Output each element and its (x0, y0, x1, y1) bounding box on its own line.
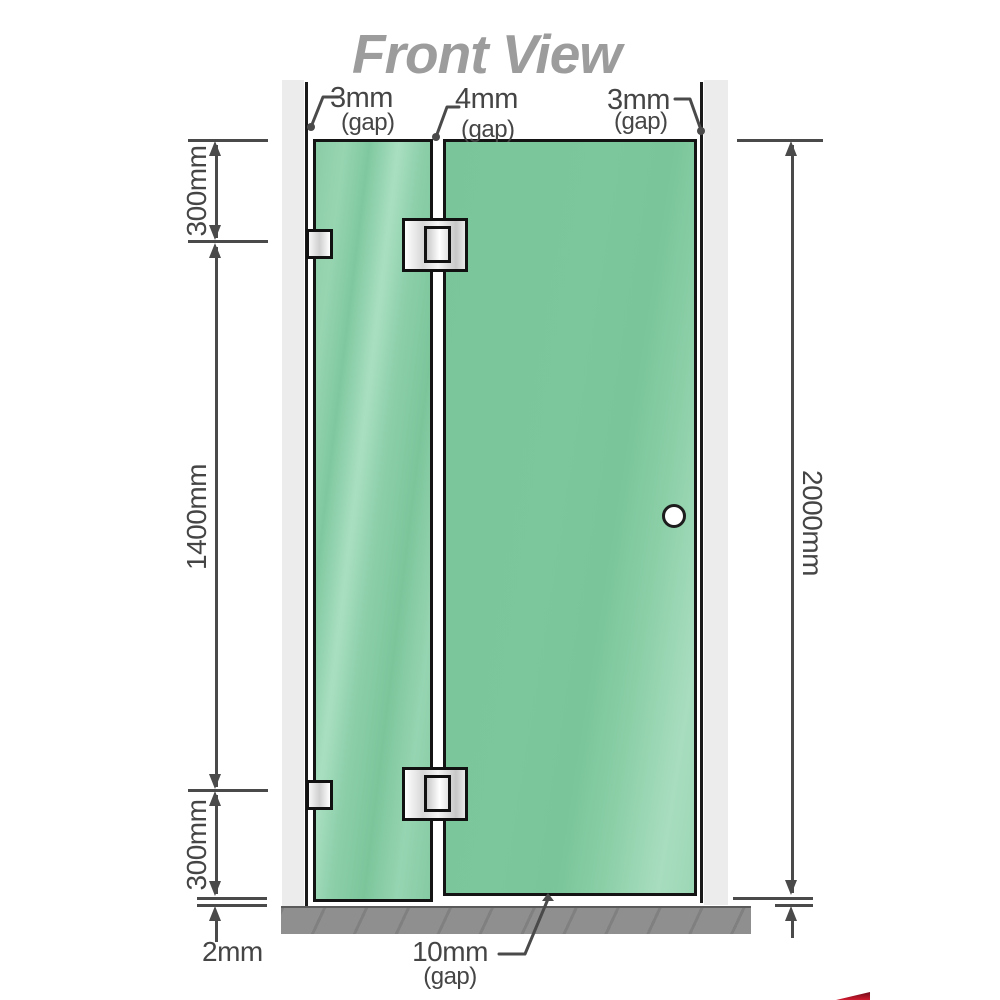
wall-bracket-top (306, 229, 333, 259)
gap-label-left-note: (gap) (341, 109, 395, 137)
leader-dot (307, 123, 315, 131)
leader-line-bottom-gap (499, 899, 548, 954)
hinge-clamp-icon (424, 226, 451, 263)
wall-bracket-bottom (306, 780, 333, 810)
dim-label-top-300mm: 300mm (181, 146, 213, 237)
leader-line-right-gap (675, 99, 701, 130)
front-view-diagram: Front View 300mm 1400mm 300mm 2mm (0, 0, 1000, 1000)
gap-label-right-note: (gap) (614, 108, 668, 136)
dim-label-2000mm: 2000mm (796, 470, 828, 576)
glass-hinge-bottom (402, 767, 468, 821)
dim-label-bottom-300mm: 300mm (181, 800, 213, 891)
gap-label-middle-4mm: 4mm (455, 83, 518, 116)
leader-dot (432, 133, 440, 141)
gap-label-middle-note: (gap) (461, 116, 515, 144)
door-knob (662, 504, 686, 528)
gap-label-bottom-note: (gap) (398, 963, 502, 991)
leader-dot (697, 127, 705, 135)
dim-label-2mm: 2mm (202, 936, 263, 968)
leader-dot (542, 893, 554, 901)
dim-label-1400mm: 1400mm (181, 464, 213, 570)
leader-overlay (0, 0, 1000, 1000)
glass-hinge-top (402, 218, 468, 272)
hinge-clamp-icon (424, 775, 451, 812)
